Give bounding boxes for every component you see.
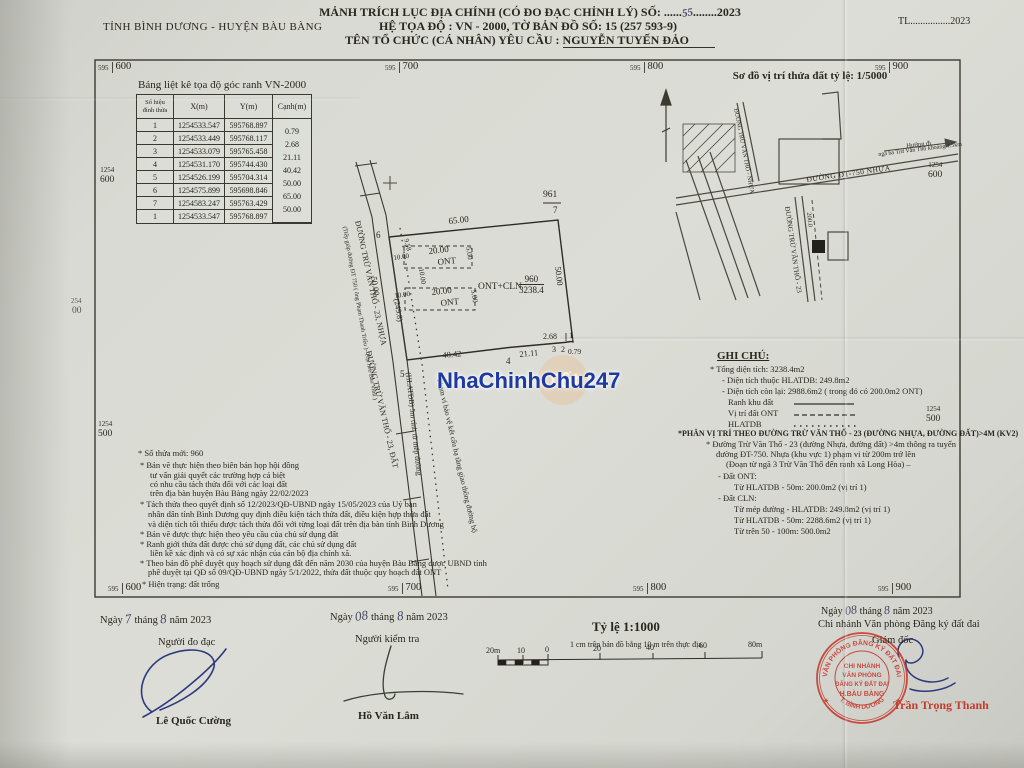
dim-9-58: 9.58 bbox=[401, 238, 412, 252]
left-note-14: * Hiện trạng: đất trống bbox=[142, 580, 219, 590]
table-cell: 595744.430 bbox=[225, 158, 273, 171]
sublot2-width: 20.00 bbox=[431, 285, 452, 297]
corner-4: 4 bbox=[506, 356, 511, 366]
grid-label-top-3: 595800 bbox=[630, 62, 663, 73]
grid-label-right-2: 1254500 bbox=[926, 406, 940, 424]
stamp-star-left: ★ bbox=[823, 697, 829, 705]
scale-tick-40: 40 bbox=[646, 644, 654, 653]
tl-reference: TL................2023 bbox=[898, 16, 970, 27]
checker-name: Hồ Văn Lâm bbox=[358, 710, 419, 722]
parcel-number-area-fraction: 960 3238.4 bbox=[519, 274, 544, 295]
scale-tick-20: 20 bbox=[593, 645, 601, 654]
sublot1-depth: 5.00 bbox=[464, 246, 474, 260]
table-cell: 595768.897 bbox=[225, 210, 273, 223]
doc-title-line3: TÊN TỔ CHỨC (CÁ NHÂN) YÊU CẦU : NGUYỄN T… bbox=[345, 34, 715, 47]
sketch-title: Sơ đồ vị trí thửa đất tỷ lệ: 1/5000 bbox=[810, 70, 964, 82]
corner-7: 7 bbox=[553, 205, 558, 215]
grid-label-bottom-1: 595600 bbox=[108, 583, 141, 594]
office-date-line: Ngày 08 tháng 8 năm 2023 bbox=[821, 604, 933, 617]
grid-label-top-1: 595600 bbox=[98, 62, 131, 73]
left-note-5: trên địa bàn huyện Bàu Bàng ngày 22/02/2… bbox=[150, 489, 308, 499]
grid-label-top-2: 595700 bbox=[385, 62, 418, 73]
parcel-area: 3238.4 bbox=[519, 285, 544, 295]
coord-table-title: Bảng liệt kê tọa độ góc ranh VN-2000 bbox=[138, 79, 306, 91]
table-cell: 1254583.247 bbox=[174, 197, 225, 210]
dim-bottom-1: 40.42 bbox=[442, 349, 462, 360]
table-cell: 5 bbox=[137, 171, 174, 184]
scale-tick-80m: 80m bbox=[748, 641, 762, 650]
grid-label-left-1: 1254600 bbox=[100, 167, 114, 185]
table-cell: 1254533.079 bbox=[174, 145, 225, 158]
scale-tick-10: 10 bbox=[517, 647, 525, 656]
checker-role: Người kiểm tra bbox=[355, 634, 419, 646]
legend-ont-label: Vị trí đất ONT bbox=[728, 409, 778, 419]
map-scale-note: 1 cm trên bản đồ bằng 10 m trên thực địa bbox=[570, 641, 702, 650]
table-cell: 7 bbox=[137, 197, 174, 210]
note-ont-header: - Đất ONT: bbox=[718, 472, 757, 482]
table-cell: 1254533.547 bbox=[174, 119, 225, 132]
table-cell: 1 bbox=[137, 210, 174, 223]
edge-length-column: 0.79 2.68 21.11 40.42 50.00 65.00 50.00 bbox=[273, 119, 311, 223]
table-cell: 2 bbox=[137, 132, 174, 145]
note-section2-title: *PHÂN VỊ TRÍ THEO ĐƯỜNG TRỪ VĂN THỐ - 23… bbox=[678, 430, 1018, 439]
dim-top: 65.00 bbox=[448, 214, 469, 226]
scale-tick-0: 0 bbox=[545, 646, 549, 655]
sketch-distance-label: 200.0 bbox=[805, 212, 814, 227]
sketch-hatched-block bbox=[683, 124, 735, 172]
document-photo: VĂN PHÒNG ĐĂNG KÝ ĐẤT ĐAI T. BÌNH DƯƠNG … bbox=[0, 0, 1024, 768]
paper-crease-vertical bbox=[842, 0, 848, 768]
note-cln-header: - Đất CLN: bbox=[718, 494, 757, 504]
table-cell: 6 bbox=[137, 184, 174, 197]
grid-label-edge-partial: 25400 bbox=[71, 298, 82, 316]
table-cell: 595763.429 bbox=[225, 197, 273, 210]
grid-label-left-2: 1254500 bbox=[98, 421, 112, 439]
table-cell: 1254526.199 bbox=[174, 171, 225, 184]
dim-10-between: 10.00 bbox=[416, 268, 426, 285]
map-scale-title: Tỷ lệ 1:1000 bbox=[592, 620, 660, 635]
checker-date-line: Ngày 08 tháng 8 năm 2023 bbox=[330, 609, 448, 624]
handwritten-doc-number: 55 bbox=[681, 6, 694, 20]
note-remaining-area: - Diện tích còn lại: 2988.6m2 ( trong đó… bbox=[722, 387, 922, 397]
dim-right: 50.00 bbox=[553, 266, 565, 286]
coord-table: Số hiệuđỉnh thửa X(m) Y(m) Cạnh(m) 1 125… bbox=[136, 94, 312, 224]
doc-title-line2: HỆ TỌA ĐỘ : VN - 2000, TỜ BẢN ĐỒ SỐ: 15 … bbox=[379, 20, 677, 33]
handwritten-month: 8 bbox=[159, 612, 168, 627]
corner-2: 2 bbox=[561, 346, 565, 355]
surveyor-role: Người đo đạc bbox=[158, 637, 215, 649]
grid-cross-icon bbox=[383, 176, 397, 190]
table-cell: 595765.458 bbox=[225, 145, 273, 158]
handwritten-day: 7 bbox=[124, 612, 133, 627]
parcel-use-label: ONT+CLN bbox=[478, 282, 522, 293]
table-cell: 3 bbox=[137, 145, 174, 158]
note-cln-detail-3: Từ trên 50 - 100m: 500.0m2 bbox=[734, 527, 831, 537]
scale-tick-60: 60 bbox=[699, 642, 707, 651]
site-watermark: NhaChinhChu247 bbox=[437, 368, 620, 394]
table-cell: 1 bbox=[137, 119, 174, 132]
sublot2-use: ONT bbox=[440, 296, 459, 308]
table-cell: 1254575.899 bbox=[174, 184, 225, 197]
office-role: Giám đốc bbox=[872, 635, 913, 647]
surveyor-name: Lê Quốc Cường bbox=[156, 715, 231, 727]
note-cln-detail-1: Từ mép đường - HLATDB: 249.8m2 (vị trí 1… bbox=[734, 505, 890, 515]
scale-tick-20m-left: 20m bbox=[486, 647, 500, 656]
table-cell: 1254531.170 bbox=[174, 158, 225, 171]
surveyor-date-line: Ngày 7 tháng 8 năm 2023 bbox=[100, 612, 211, 627]
sketch-roads bbox=[676, 92, 958, 302]
grid-label-bottom-4: 595900 bbox=[878, 583, 911, 594]
table-cell: 595698.846 bbox=[225, 184, 273, 197]
note-hlatdb-area: - Diện tích thuộc HLATDB: 249.8m2 bbox=[722, 376, 849, 386]
note-total-area: * Tổng diện tích: 3238.4m2 bbox=[710, 365, 805, 375]
table-cell: 4 bbox=[137, 158, 174, 171]
signature-surveyor bbox=[142, 649, 226, 717]
table-cell: 595768.117 bbox=[225, 132, 273, 145]
parcel-number: 960 bbox=[519, 274, 544, 285]
north-arrow-icon bbox=[661, 90, 671, 162]
neighbor-parcel-number: 961 bbox=[543, 190, 557, 201]
stamp-center-line1: CHI NHÁNH bbox=[844, 661, 881, 670]
left-note-13: phê duyệt tại QĐ số 09/QĐ-UBND ngày 5/1/… bbox=[148, 568, 441, 578]
notes-title: GHI CHÚ: bbox=[717, 350, 769, 362]
sketch-parcel-marker bbox=[812, 240, 825, 253]
handwritten-day: 08 bbox=[354, 608, 369, 624]
table-cell: 1254533.547 bbox=[174, 210, 225, 223]
handwritten-month: 8 bbox=[396, 609, 405, 624]
left-note-1: * Số thửa mới: 960 bbox=[138, 449, 203, 459]
paper-crease-horizontal bbox=[560, 336, 1024, 341]
corner-3: 3 bbox=[552, 346, 556, 355]
province-line: TỈNH BÌNH DƯƠNG - HUYỆN BÀU BÀNG bbox=[103, 21, 322, 33]
requester-name: NGUYỄN TUYẾN ĐẢO bbox=[563, 33, 715, 48]
photo-shadow-bottom bbox=[0, 742, 1024, 768]
stamp-center-line2: VĂN PHÒNG bbox=[842, 670, 881, 679]
table-cell: 595768.897 bbox=[225, 119, 273, 132]
director-name: Trần Trọng Thanh bbox=[893, 699, 989, 712]
grid-label-right-1: 1254600 bbox=[928, 162, 942, 180]
scale-bar-blocks bbox=[498, 660, 540, 665]
legend-boundary-label: Ranh khu đất bbox=[728, 398, 773, 408]
handwritten-month: 8 bbox=[883, 604, 891, 618]
dim-bottom-2: 21.11 bbox=[519, 348, 539, 359]
dim-bottom-4: 0.79 bbox=[568, 348, 581, 356]
grid-label-bottom-3: 595800 bbox=[633, 583, 666, 594]
note-cln-detail-2: Từ HLATDB - 50m: 2288.6m2 (vị trí 1) bbox=[734, 516, 871, 526]
signature-checker bbox=[344, 646, 463, 701]
corner-6: 6 bbox=[376, 230, 381, 240]
grid-label-bottom-2: 595700 bbox=[388, 583, 421, 594]
sublot1-use: ONT bbox=[437, 255, 456, 267]
doc-title-line1: MẢNH TRÍCH LỤC ĐỊA CHÍNH (CÓ ĐO ĐẠC CHỈN… bbox=[319, 6, 741, 19]
photo-shadow-left bbox=[0, 0, 70, 768]
dim-bottom-3: 2.68 bbox=[543, 333, 557, 342]
note-road-desc-3: (Đoạn từ ngã 3 Trừ Văn Thố đến ranh xã L… bbox=[726, 460, 911, 470]
table-cell: 595704.314 bbox=[225, 171, 273, 184]
table-cell: 1254533.449 bbox=[174, 132, 225, 145]
sublot1-width: 20.00 bbox=[428, 244, 449, 256]
